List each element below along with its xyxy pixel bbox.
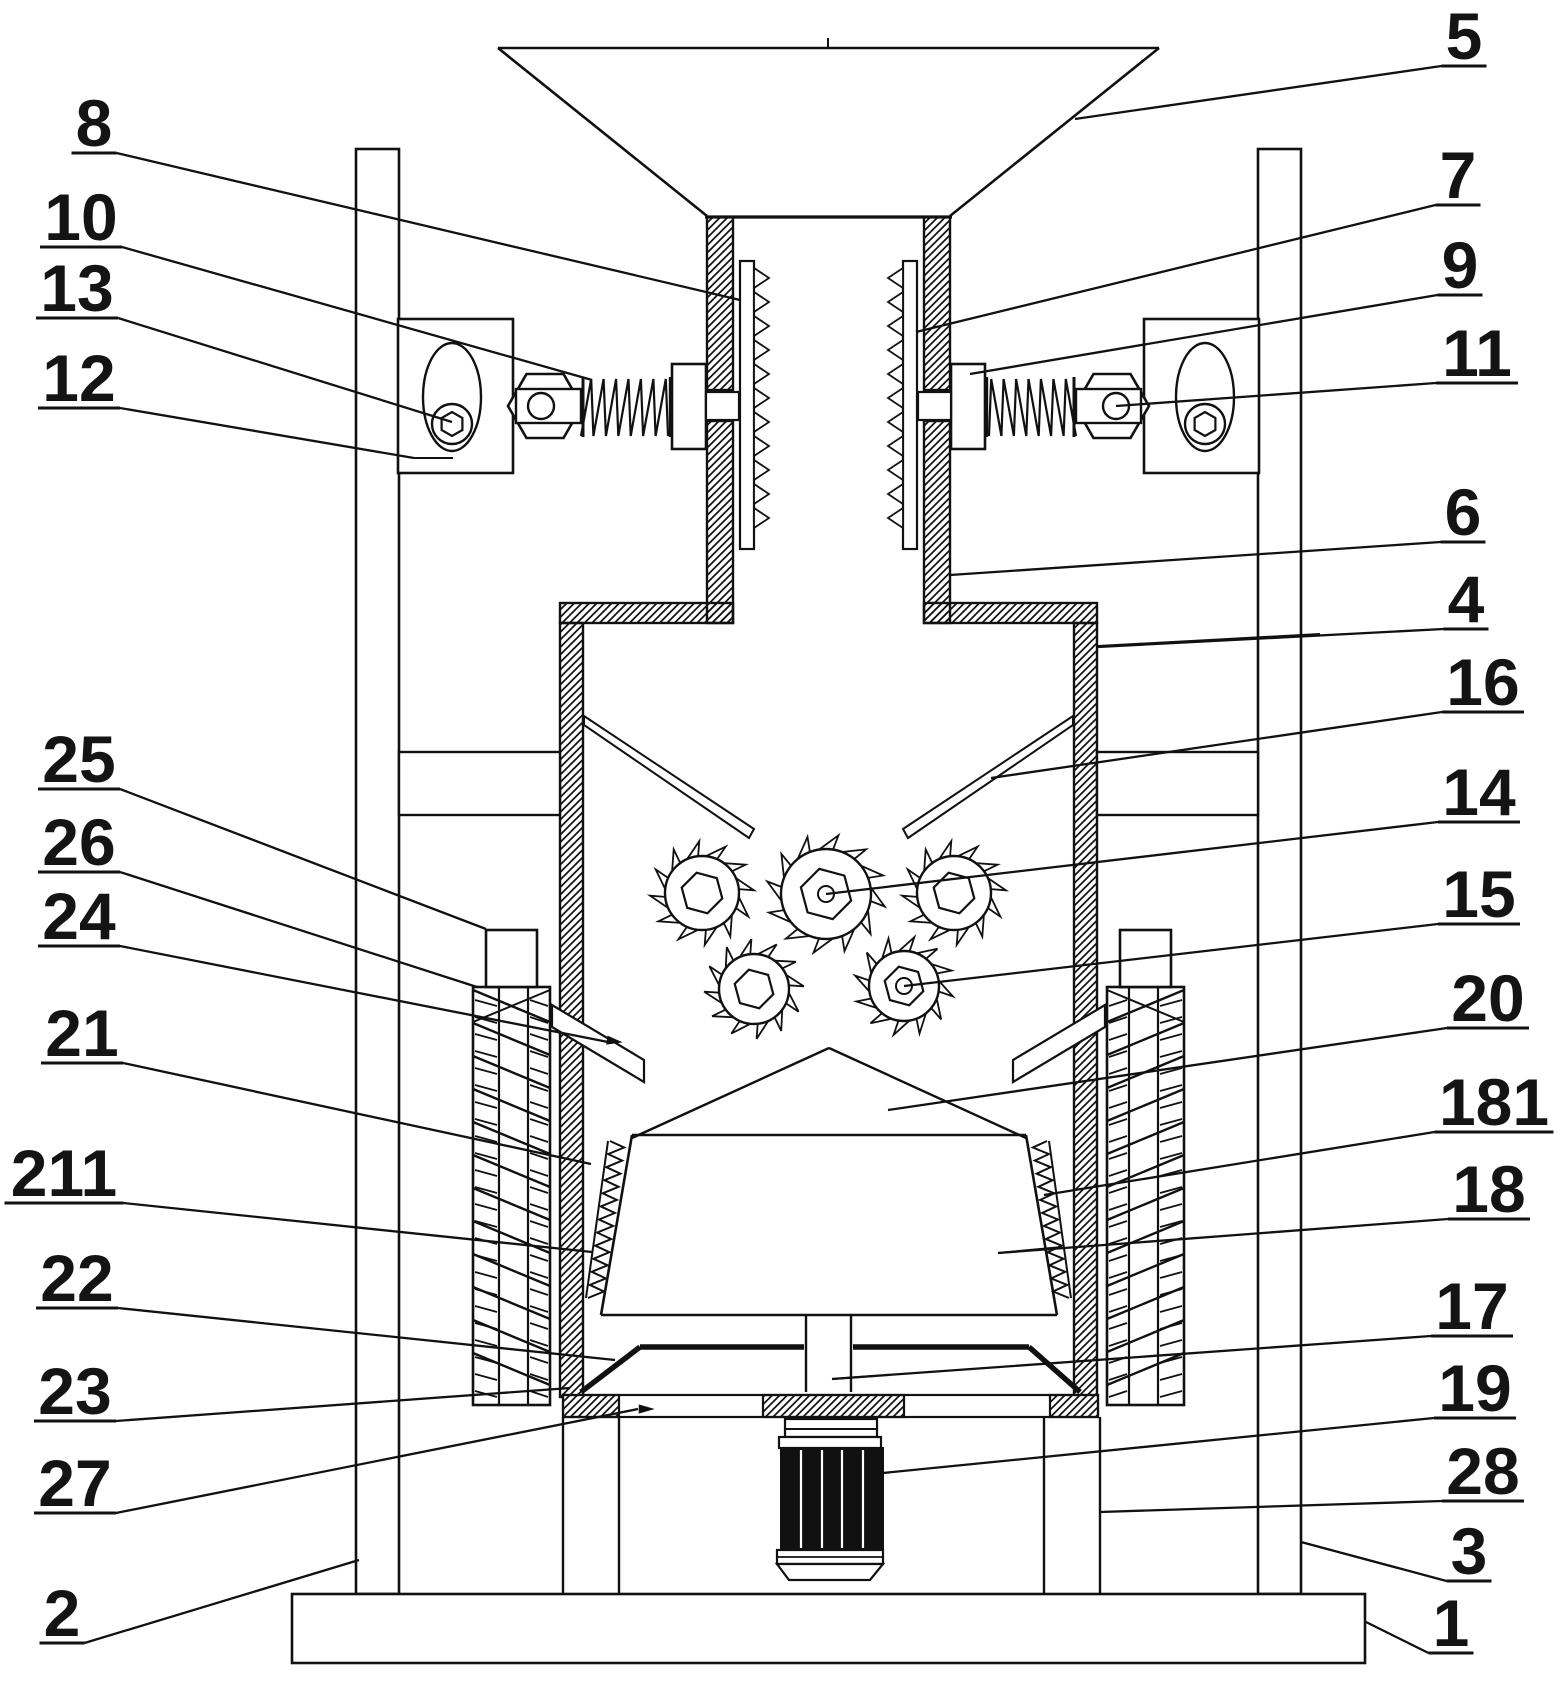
- svg-text:8: 8: [76, 86, 113, 160]
- svg-text:181: 181: [1439, 1065, 1549, 1139]
- svg-text:5: 5: [1446, 0, 1483, 73]
- svg-text:16: 16: [1446, 645, 1519, 719]
- svg-text:11: 11: [1442, 316, 1512, 390]
- svg-text:25: 25: [42, 722, 115, 796]
- svg-text:26: 26: [42, 805, 115, 879]
- svg-text:17: 17: [1435, 1269, 1508, 1343]
- svg-text:4: 4: [1448, 562, 1485, 636]
- svg-text:28: 28: [1446, 1434, 1519, 1508]
- svg-text:20: 20: [1451, 961, 1524, 1035]
- svg-text:15: 15: [1442, 857, 1515, 931]
- svg-text:24: 24: [42, 879, 116, 953]
- svg-text:7: 7: [1440, 138, 1477, 212]
- svg-text:2: 2: [44, 1576, 81, 1650]
- svg-text:23: 23: [38, 1354, 111, 1428]
- svg-text:27: 27: [38, 1446, 111, 1520]
- svg-text:1: 1: [1433, 1586, 1470, 1660]
- svg-text:19: 19: [1438, 1351, 1511, 1425]
- svg-text:9: 9: [1442, 228, 1479, 302]
- svg-text:211: 211: [11, 1136, 117, 1210]
- svg-text:13: 13: [40, 251, 113, 325]
- svg-text:14: 14: [1442, 755, 1516, 829]
- svg-text:3: 3: [1451, 1514, 1488, 1588]
- svg-text:10: 10: [44, 180, 117, 254]
- svg-text:22: 22: [40, 1241, 113, 1315]
- svg-text:21: 21: [45, 996, 118, 1070]
- svg-text:18: 18: [1452, 1152, 1525, 1226]
- svg-text:12: 12: [42, 341, 115, 415]
- svg-text:6: 6: [1445, 475, 1482, 549]
